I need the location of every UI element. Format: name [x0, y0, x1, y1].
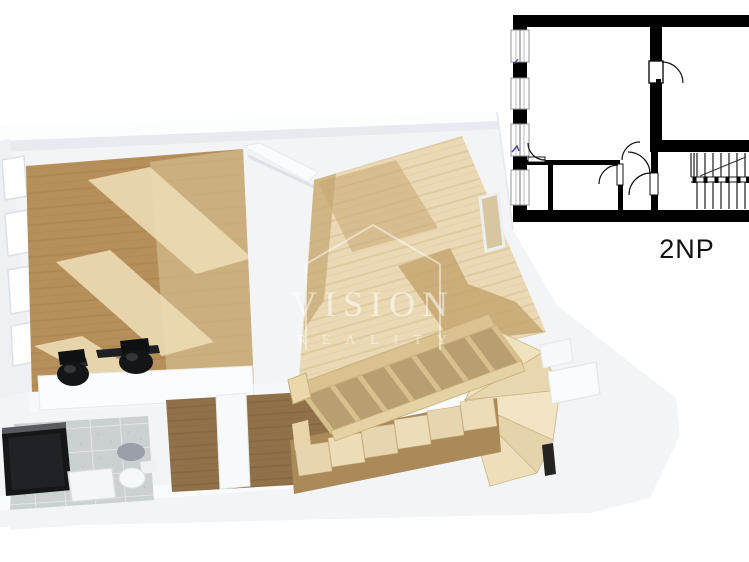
door-swing — [599, 165, 618, 184]
door-leaf — [650, 173, 658, 195]
floorplan-2d: 2NP — [511, 15, 749, 264]
hallway-wall-stub — [216, 393, 250, 489]
office-chair — [57, 349, 89, 386]
hallway — [166, 392, 310, 492]
bathroom — [2, 416, 158, 530]
toilet — [119, 468, 145, 488]
door-hinge — [656, 79, 661, 84]
watermark-subtitle: R E A L I T Y — [297, 333, 453, 348]
floor-label: 2NP — [659, 234, 715, 264]
shower-tray — [68, 468, 116, 502]
plan-window — [511, 124, 529, 156]
window-frame — [2, 156, 27, 200]
door-leaf — [617, 164, 623, 185]
office-chair — [119, 338, 153, 374]
door-swing — [622, 142, 640, 160]
right-wall-window-opening — [480, 193, 504, 251]
plan-window — [511, 30, 529, 62]
newel-base — [292, 420, 311, 450]
floorplan-canvas: VISION R E A L I T Y — [0, 0, 749, 562]
plan-window — [511, 78, 529, 109]
door-swing — [628, 152, 650, 174]
plan-window — [511, 170, 529, 205]
bath-mat — [117, 443, 145, 461]
door-swing — [662, 62, 683, 83]
plan-stairs — [691, 153, 749, 209]
window-frame — [5, 210, 30, 256]
watermark-title: VISION — [291, 284, 455, 324]
shower-glass-panel — [8, 433, 65, 490]
door-swing — [629, 173, 651, 195]
floorplan-visualization-page: VISION R E A L I T Y — [0, 0, 749, 562]
plan-stair-direction-line — [700, 157, 746, 176]
floorplan-3d-render: VISION R E A L I T Y — [0, 111, 680, 530]
